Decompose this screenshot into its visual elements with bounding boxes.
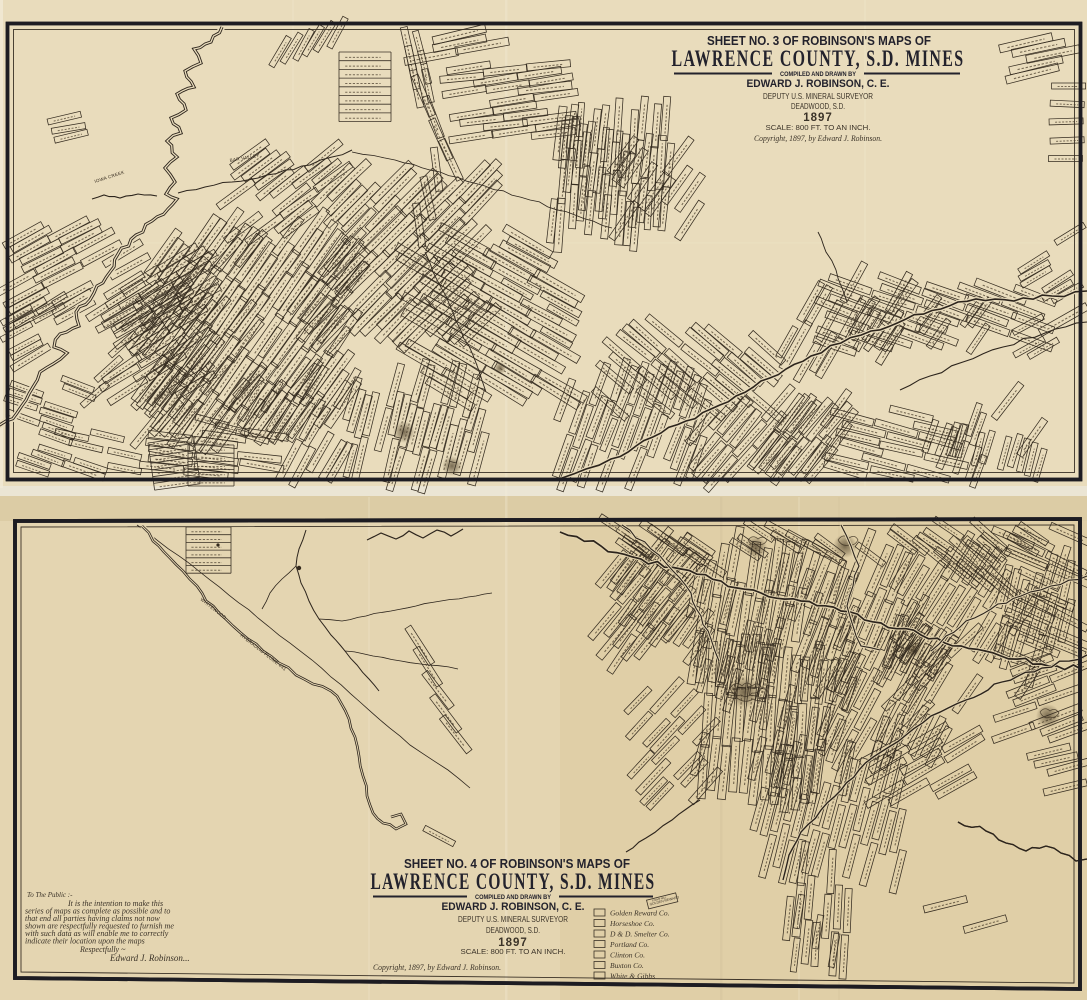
svg-text:LAWRENCE COUNTY, S.D. MINES: LAWRENCE COUNTY, S.D. MINES bbox=[371, 869, 656, 894]
svg-text:Buxton Co.: Buxton Co. bbox=[610, 961, 644, 970]
svg-text:DEPUTY U.S. MINERAL SURVEYOR: DEPUTY U.S. MINERAL SURVEYOR bbox=[458, 914, 568, 924]
svg-text:1897: 1897 bbox=[498, 937, 528, 949]
svg-text:Portland Co.: Portland Co. bbox=[609, 940, 649, 949]
svg-text:Copyright, 1897, by Edward J.: Copyright, 1897, by Edward J. Robinson. bbox=[754, 133, 882, 143]
svg-text:EDWARD J. ROBINSON, C. E.: EDWARD J. ROBINSON, C. E. bbox=[442, 901, 585, 913]
svg-text:DEADWOOD, S.D.: DEADWOOD, S.D. bbox=[486, 926, 540, 935]
svg-text:Edward J. Robinson...: Edward J. Robinson... bbox=[109, 953, 190, 963]
svg-text:Golden Reward Co.: Golden Reward Co. bbox=[610, 909, 670, 918]
svg-text:White & Gibbs: White & Gibbs bbox=[610, 972, 655, 981]
svg-text:DEPUTY U.S. MINERAL SURVEYOR: DEPUTY U.S. MINERAL SURVEYOR bbox=[763, 91, 873, 101]
svg-text:SCALE: 800 FT. TO AN INCH.: SCALE: 800 FT. TO AN INCH. bbox=[766, 125, 871, 132]
svg-text:D & D. Smelter Co.: D & D. Smelter Co. bbox=[609, 930, 670, 939]
svg-text:SCALE: 800 FT. TO AN INCH.: SCALE: 800 FT. TO AN INCH. bbox=[461, 949, 566, 956]
svg-text:COMPILED AND DRAWN BY: COMPILED AND DRAWN BY bbox=[780, 71, 856, 78]
svg-text:1897: 1897 bbox=[803, 112, 833, 124]
svg-text:To The Public :-: To The Public :- bbox=[27, 891, 73, 899]
svg-text:TERRAVILLE: TERRAVILLE bbox=[723, 686, 750, 691]
svg-text:Copyright, 1897, by Edward J.: Copyright, 1897, by Edward J. Robinson. bbox=[373, 962, 501, 972]
svg-text:DEADWOOD, S.D.: DEADWOOD, S.D. bbox=[791, 102, 845, 111]
svg-text:EDWARD J. ROBINSON, C. E.: EDWARD J. ROBINSON, C. E. bbox=[747, 78, 890, 90]
svg-text:Horseshoe Co.: Horseshoe Co. bbox=[609, 919, 655, 928]
svg-text:Clinton Co.: Clinton Co. bbox=[610, 951, 645, 960]
svg-text:COMPILED AND DRAWN BY: COMPILED AND DRAWN BY bbox=[475, 894, 551, 901]
svg-text:LAWRENCE COUNTY, S.D. MINES: LAWRENCE COUNTY, S.D. MINES bbox=[672, 46, 965, 71]
